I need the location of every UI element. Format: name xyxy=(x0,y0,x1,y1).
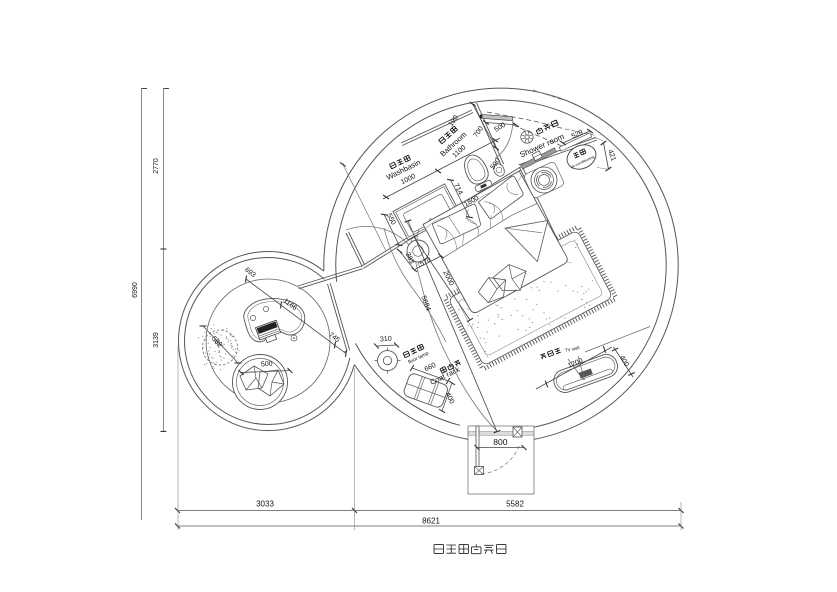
svg-text:500: 500 xyxy=(261,361,273,369)
svg-text:800: 800 xyxy=(493,437,507,447)
svg-text:2770: 2770 xyxy=(153,158,160,174)
svg-text:3139: 3139 xyxy=(153,332,160,348)
svg-text:8621: 8621 xyxy=(422,517,440,526)
svg-text:6990: 6990 xyxy=(132,282,139,298)
svg-text:5582: 5582 xyxy=(506,500,524,509)
svg-text:3033: 3033 xyxy=(256,500,274,509)
svg-text:310: 310 xyxy=(380,336,392,344)
